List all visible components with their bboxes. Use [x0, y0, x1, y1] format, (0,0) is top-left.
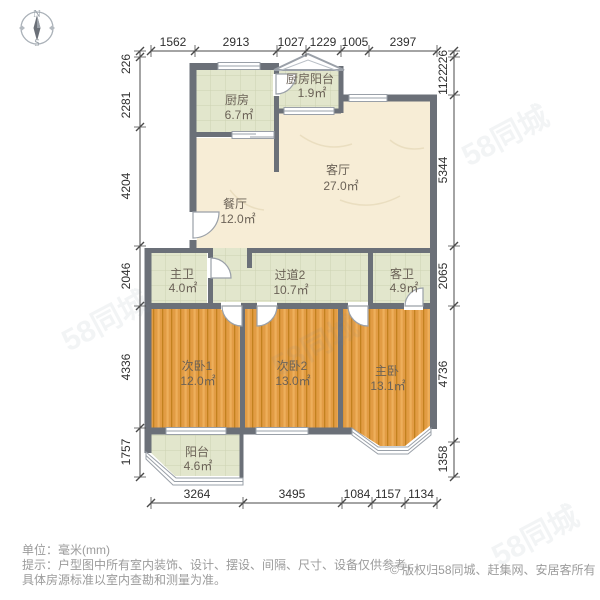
- dim-right-0: 226: [436, 50, 450, 70]
- footer-notes: 单位：毫米(mm) 提示：户型图中所有室内装饰、设计、摆设、间隔、尺寸、设备仅供…: [22, 543, 418, 588]
- dim-top-2: 1027: [278, 35, 305, 49]
- dim-left-1: 2281: [119, 91, 133, 118]
- hallway-area: 10.7㎡: [273, 283, 308, 297]
- dim-right-2: 5344: [436, 156, 450, 183]
- balcony-label: 阳台: [185, 444, 209, 459]
- floorplan-page: 厨房 6.7㎡ 厨房阳台 1.9㎡ 客厅 27.0㎡ 餐厅 12.0㎡ 主卫 4…: [0, 0, 600, 600]
- copyright-note: © 版权归58同城、赶集网、安居客所有: [390, 561, 596, 578]
- dim-right-4: 4736: [436, 360, 450, 387]
- dim-left-0: 226: [119, 54, 133, 74]
- dim-left-2: 4204: [119, 172, 133, 199]
- dim-right-1: 1122: [436, 69, 450, 95]
- dim-bottom-0: 3264: [184, 487, 211, 501]
- hallway-label: 过道2: [275, 268, 306, 282]
- watermark-text: 58同城: [457, 100, 555, 173]
- kitchen-balcony-roof: [274, 54, 344, 70]
- unit-note: 单位：毫米(mm): [22, 543, 418, 558]
- dim-bottom-3: 1157: [375, 487, 401, 501]
- master-bath-area: 4.0㎡: [169, 281, 198, 295]
- kitchen-balcony-area: 1.9㎡: [298, 86, 327, 100]
- dim-top-5: 2397: [390, 35, 417, 49]
- dim-left-5: 1757: [119, 438, 133, 465]
- compass-icon: N S: [19, 9, 55, 49]
- dim-top-0: 1562: [160, 35, 187, 49]
- master-bedroom-label: 主卧: [375, 364, 399, 378]
- dim-bottom-2: 1084: [344, 487, 371, 501]
- dim-bottom-1: 3495: [279, 487, 306, 501]
- living-area: 27.0㎡: [323, 179, 358, 193]
- dim-right-3: 2065: [436, 262, 450, 289]
- guest-bath-area: 4.9㎡: [390, 281, 419, 295]
- master-bath-label: 主卫: [170, 267, 194, 281]
- master-bedroom-area: 13.1㎡: [370, 379, 405, 393]
- dim-top-1: 2913: [223, 35, 250, 49]
- bedroom2-1-area: 12.0㎡: [180, 374, 215, 388]
- dim-bottom-4: 1134: [408, 487, 434, 501]
- bedroom2-1-label: 次卧1: [182, 359, 213, 373]
- dim-top-3: 1229: [310, 35, 337, 49]
- dim-left-4: 4336: [119, 353, 133, 380]
- balcony-area: 4.6㎡: [184, 459, 213, 473]
- tip-line-2: 具体房源标准以室内查勘和测量为准。: [22, 573, 418, 588]
- guest-bath-label: 客卫: [390, 266, 414, 281]
- kitchen-label: 厨房: [225, 92, 249, 107]
- dim-left-3: 2046: [119, 262, 133, 289]
- dining-label: 餐厅: [223, 196, 247, 211]
- dim-top-4: 1005: [342, 35, 369, 49]
- tip-line-1: 提示：户型图中所有室内装饰、设计、摆设、间隔、尺寸、设备仅供参考，: [22, 558, 418, 573]
- dim-right-5: 1358: [436, 445, 450, 472]
- living-label: 客厅: [326, 162, 350, 177]
- kitchen-area: 6.7㎡: [225, 108, 254, 122]
- dining-area: 12.0㎡: [220, 212, 255, 226]
- floorplan-drawing: 厨房 6.7㎡ 厨房阳台 1.9㎡ 客厅 27.0㎡ 餐厅 12.0㎡ 主卫 4…: [0, 0, 600, 600]
- kitchen-balcony-label: 厨房阳台: [286, 71, 334, 86]
